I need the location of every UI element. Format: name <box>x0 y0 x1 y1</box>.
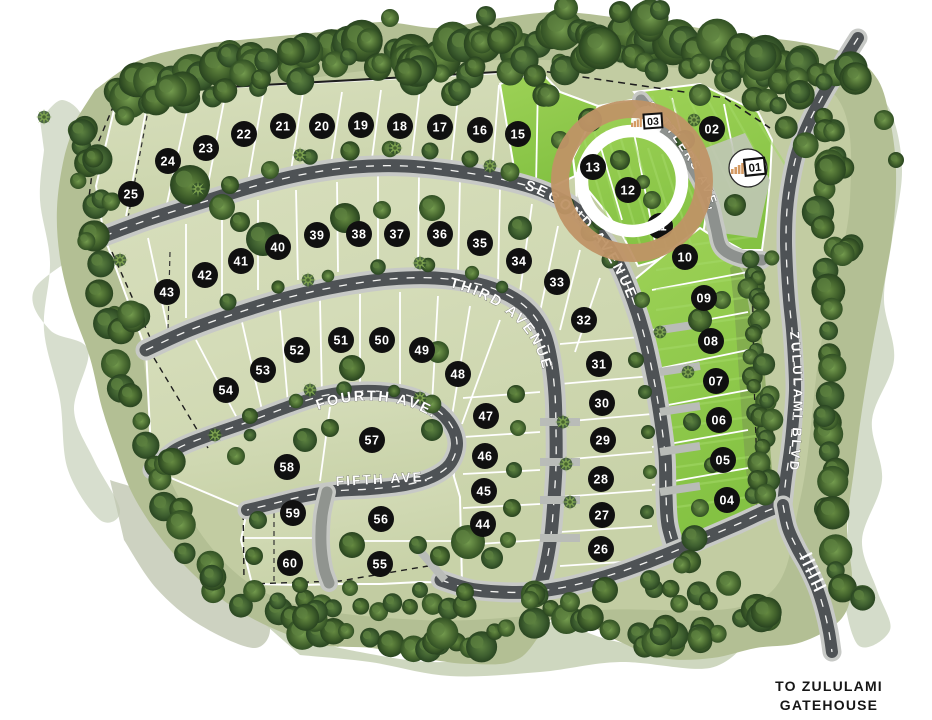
svg-text:10: 10 <box>678 251 693 265</box>
svg-text:57: 57 <box>365 434 380 448</box>
svg-text:31: 31 <box>592 358 607 372</box>
svg-text:42: 42 <box>198 269 213 283</box>
svg-text:35: 35 <box>473 237 488 251</box>
svg-text:24: 24 <box>161 155 176 169</box>
svg-text:60: 60 <box>283 557 298 571</box>
svg-text:56: 56 <box>374 513 389 527</box>
svg-text:GATEHOUSE: GATEHOUSE <box>780 697 878 713</box>
svg-text:49: 49 <box>415 344 430 358</box>
svg-text:36: 36 <box>433 228 448 242</box>
svg-text:17: 17 <box>433 121 448 135</box>
svg-text:07: 07 <box>709 375 724 389</box>
svg-text:58: 58 <box>280 461 295 475</box>
svg-text:47: 47 <box>479 410 494 424</box>
svg-text:26: 26 <box>594 543 609 557</box>
svg-text:28: 28 <box>594 473 609 487</box>
svg-text:39: 39 <box>310 229 325 243</box>
svg-text:25: 25 <box>124 188 139 202</box>
svg-text:01: 01 <box>748 162 763 175</box>
svg-text:51: 51 <box>334 334 349 348</box>
svg-text:40: 40 <box>271 241 286 255</box>
svg-text:52: 52 <box>290 344 305 358</box>
svg-text:03: 03 <box>647 116 660 129</box>
svg-text:09: 09 <box>697 292 712 306</box>
svg-text:22: 22 <box>237 128 252 142</box>
svg-text:38: 38 <box>352 228 367 242</box>
svg-text:53: 53 <box>256 364 271 378</box>
svg-text:13: 13 <box>586 161 601 175</box>
svg-text:44: 44 <box>476 518 491 532</box>
svg-text:32: 32 <box>577 314 592 328</box>
svg-text:29: 29 <box>596 434 611 448</box>
svg-text:37: 37 <box>390 228 405 242</box>
svg-text:33: 33 <box>550 276 565 290</box>
svg-text:05: 05 <box>716 454 731 468</box>
svg-text:23: 23 <box>199 142 214 156</box>
svg-text:50: 50 <box>375 334 390 348</box>
svg-text:12: 12 <box>621 184 636 198</box>
svg-text:59: 59 <box>286 507 301 521</box>
svg-text:08: 08 <box>704 335 719 349</box>
svg-text:55: 55 <box>373 558 388 572</box>
svg-text:54: 54 <box>219 384 234 398</box>
svg-text:04: 04 <box>720 494 735 508</box>
svg-text:16: 16 <box>473 124 488 138</box>
svg-text:06: 06 <box>712 414 727 428</box>
svg-text:19: 19 <box>354 119 369 133</box>
svg-text:02: 02 <box>705 123 720 137</box>
svg-text:21: 21 <box>276 120 291 134</box>
svg-text:41: 41 <box>234 255 249 269</box>
svg-text:20: 20 <box>315 120 330 134</box>
svg-text:TO ZULULAMI: TO ZULULAMI <box>775 678 883 694</box>
svg-text:15: 15 <box>511 128 526 142</box>
svg-text:30: 30 <box>595 397 610 411</box>
svg-text:45: 45 <box>477 485 492 499</box>
svg-text:43: 43 <box>160 286 175 300</box>
svg-text:34: 34 <box>512 255 527 269</box>
svg-text:27: 27 <box>595 509 610 523</box>
svg-text:48: 48 <box>451 368 466 382</box>
svg-text:18: 18 <box>393 120 408 134</box>
svg-text:46: 46 <box>478 450 493 464</box>
